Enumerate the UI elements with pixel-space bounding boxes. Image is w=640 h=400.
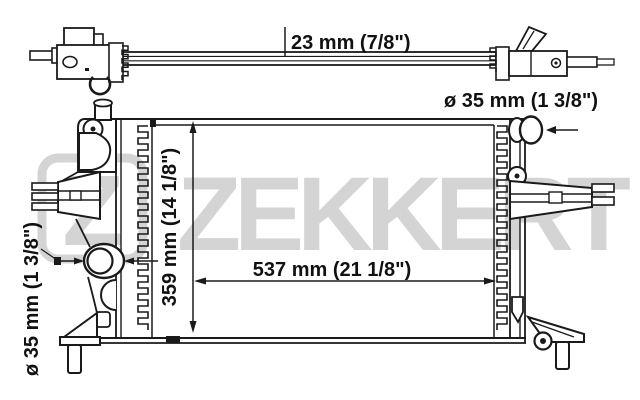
outlet-dim-label: ø 35 mm (1 3/8") <box>21 222 43 376</box>
left-bracket <box>64 313 97 337</box>
bracket-flap <box>516 27 546 51</box>
connector-pin <box>32 193 58 200</box>
tank-tab <box>512 297 523 322</box>
connector-pin <box>592 197 614 205</box>
mount-hole <box>63 57 77 68</box>
tank-tab <box>96 312 110 327</box>
inlet-port <box>520 117 542 144</box>
top-view-right-fitting <box>490 27 614 80</box>
top-right-cap-serration <box>490 48 496 72</box>
width-dim-label: 537 mm (21 1/8") <box>253 259 411 281</box>
top-view-left-fitting <box>30 28 128 94</box>
top-view: 23 mm (7/8") <box>30 27 614 94</box>
height-dim-label: 359 mm (14 1/8") <box>159 148 181 306</box>
depth-dim-label: 23 mm (7/8") <box>291 32 411 54</box>
lower-bulge <box>101 280 116 310</box>
connector-pin <box>32 183 58 190</box>
tank-bulge <box>79 133 110 170</box>
brand-watermark-text: ZEKKERT <box>177 156 631 273</box>
left-mount-peg <box>68 345 81 373</box>
inlet-arrow <box>546 126 556 134</box>
right-mount-peg <box>556 342 569 369</box>
radiator-diagram: Z ZEKKERT <box>0 0 640 400</box>
inlet-dim-label: ø 35 mm (1 3/8") <box>444 90 598 112</box>
left-fin-serration <box>138 126 148 330</box>
right-fin-serration <box>497 126 507 330</box>
connector-pin <box>32 203 58 210</box>
connector-pin <box>592 184 614 192</box>
